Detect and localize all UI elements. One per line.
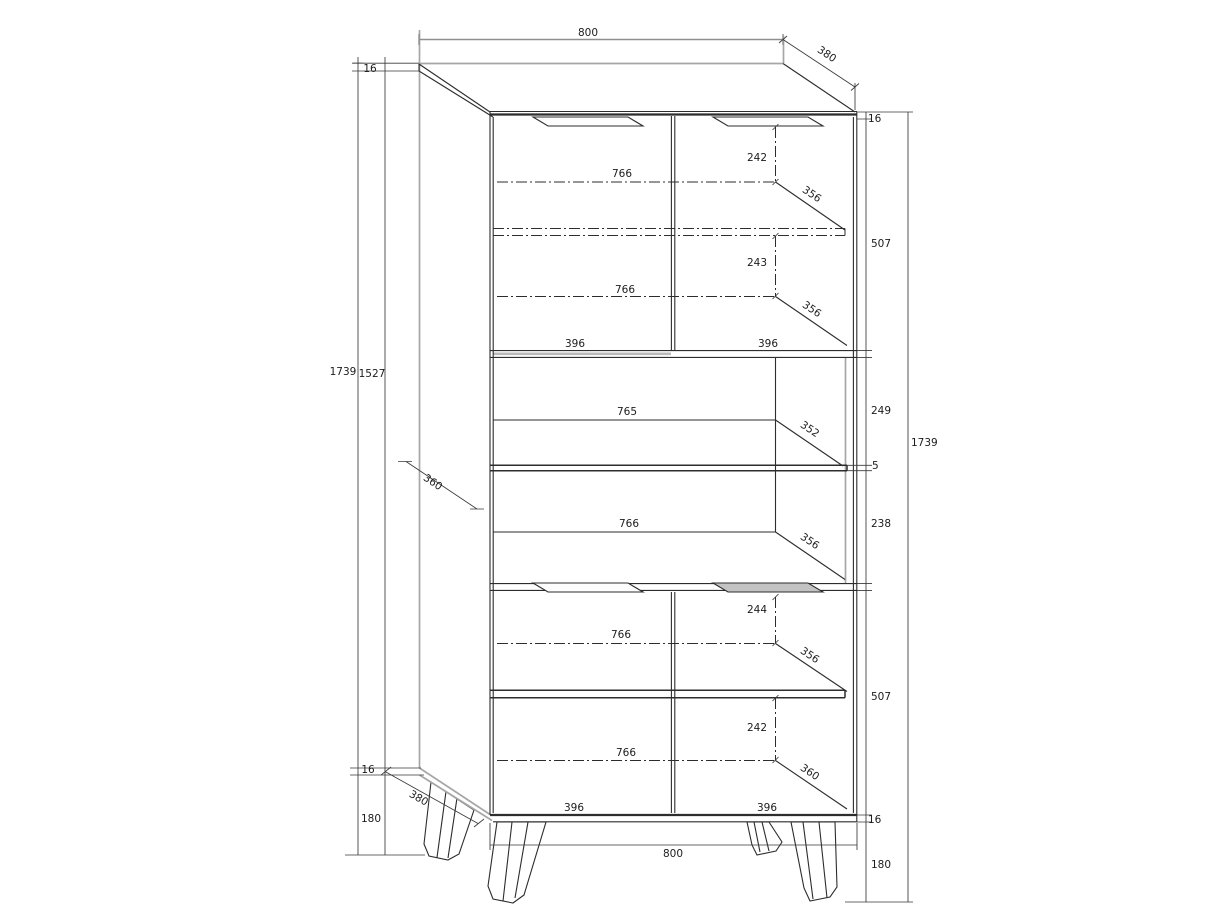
top-panel-edges [419, 64, 855, 118]
dim-top-width: 800 [578, 27, 598, 39]
dim-ts-lower-depth: 356 [800, 299, 824, 320]
dim-ts-top-clearance: 242 [747, 152, 767, 164]
dim-left-bottom-depth: 380 [407, 788, 430, 808]
dim-bs-door-right: 396 [757, 802, 777, 814]
dimension-labels: 800 380 16 16 1739 1527 360 16 180 380 5… [330, 27, 938, 871]
cabinet-structure [419, 64, 857, 823]
handle-top-right-door [713, 117, 823, 126]
dim-ms-upper-width: 765 [617, 406, 637, 418]
bottom-shelf [490, 690, 845, 697]
dim-bs-upper-width: 766 [611, 629, 631, 641]
dim-bs-top-clearance: 244 [747, 604, 767, 616]
dim-ms-upper-depth: 352 [798, 419, 821, 440]
dim-top-depth: 380 [815, 44, 838, 65]
leg-front-right [791, 822, 837, 901]
dim-ts-upper-width: 766 [612, 168, 632, 180]
dimension-lines [345, 34, 913, 902]
dim-top-thickness-right: 16 [868, 113, 882, 125]
dim-ts-bottom-clearance: 243 [747, 257, 767, 269]
dim-top-width-line [419, 34, 783, 45]
dim-right-upper-offset: 249 [871, 405, 891, 417]
dim-bs-lower-depth: 360 [798, 762, 821, 783]
dim-bottom-width: 800 [663, 848, 683, 860]
handle-bottom-left-door [533, 583, 643, 592]
oblique-structure [419, 30, 846, 821]
dim-right-top-section: 507 [871, 238, 891, 250]
dim-right-bottom-thickness: 16 [868, 814, 882, 826]
dim-bs-upper-depth: 356 [798, 645, 822, 666]
dim-ts-door-left: 396 [565, 338, 585, 350]
dim-left-leg-height: 180 [361, 813, 381, 825]
leg-back-right [747, 822, 782, 855]
middle-compartment-edges [493, 358, 845, 580]
dim-ms-lower-width: 766 [619, 518, 639, 530]
dim-ts-upper-depth: 356 [800, 184, 824, 205]
leg-front-left [488, 822, 546, 903]
dim-right-bottom-section: 507 [871, 691, 891, 703]
dim-left-bottom-thickness: 16 [361, 764, 375, 776]
dim-ts-door-right: 396 [758, 338, 778, 350]
handle-top-left-door [533, 117, 643, 126]
dim-bs-bottom-clearance: 242 [747, 722, 767, 734]
dim-right-lines [845, 112, 913, 902]
handle-bottom-right-door [713, 583, 823, 592]
middle-shelf [490, 465, 847, 470]
dim-left-total-height: 1739 [330, 366, 357, 378]
legs [424, 782, 837, 903]
back-left-edge [419, 30, 784, 821]
dim-left-lines [345, 57, 425, 855]
dim-top-thickness-left: 16 [363, 63, 377, 75]
dim-right-shelf-gap: 5 [872, 460, 879, 472]
dim-right-leg-height: 180 [871, 859, 891, 871]
cabinet-drawing: 800 380 16 16 1739 1527 360 16 180 380 5… [0, 0, 1218, 914]
dim-ts-lower-width: 766 [615, 284, 635, 296]
dim-left-mid-depth: 360 [421, 472, 444, 493]
technical-drawing-canvas: 800 380 16 16 1739 1527 360 16 180 380 5… [0, 0, 1218, 914]
front-frame [490, 112, 857, 823]
dim-right-total-height: 1739 [911, 437, 938, 449]
dim-left-inner-height: 1527 [359, 368, 386, 380]
depth-diagonals [776, 182, 848, 809]
dim-bs-lower-width: 766 [616, 747, 636, 759]
door-dividers [671, 116, 674, 813]
dim-bs-door-left: 396 [564, 802, 584, 814]
dim-ms-lower-depth: 356 [798, 531, 822, 552]
dim-right-lower-offset: 238 [871, 518, 891, 530]
hidden-edges [493, 127, 845, 761]
